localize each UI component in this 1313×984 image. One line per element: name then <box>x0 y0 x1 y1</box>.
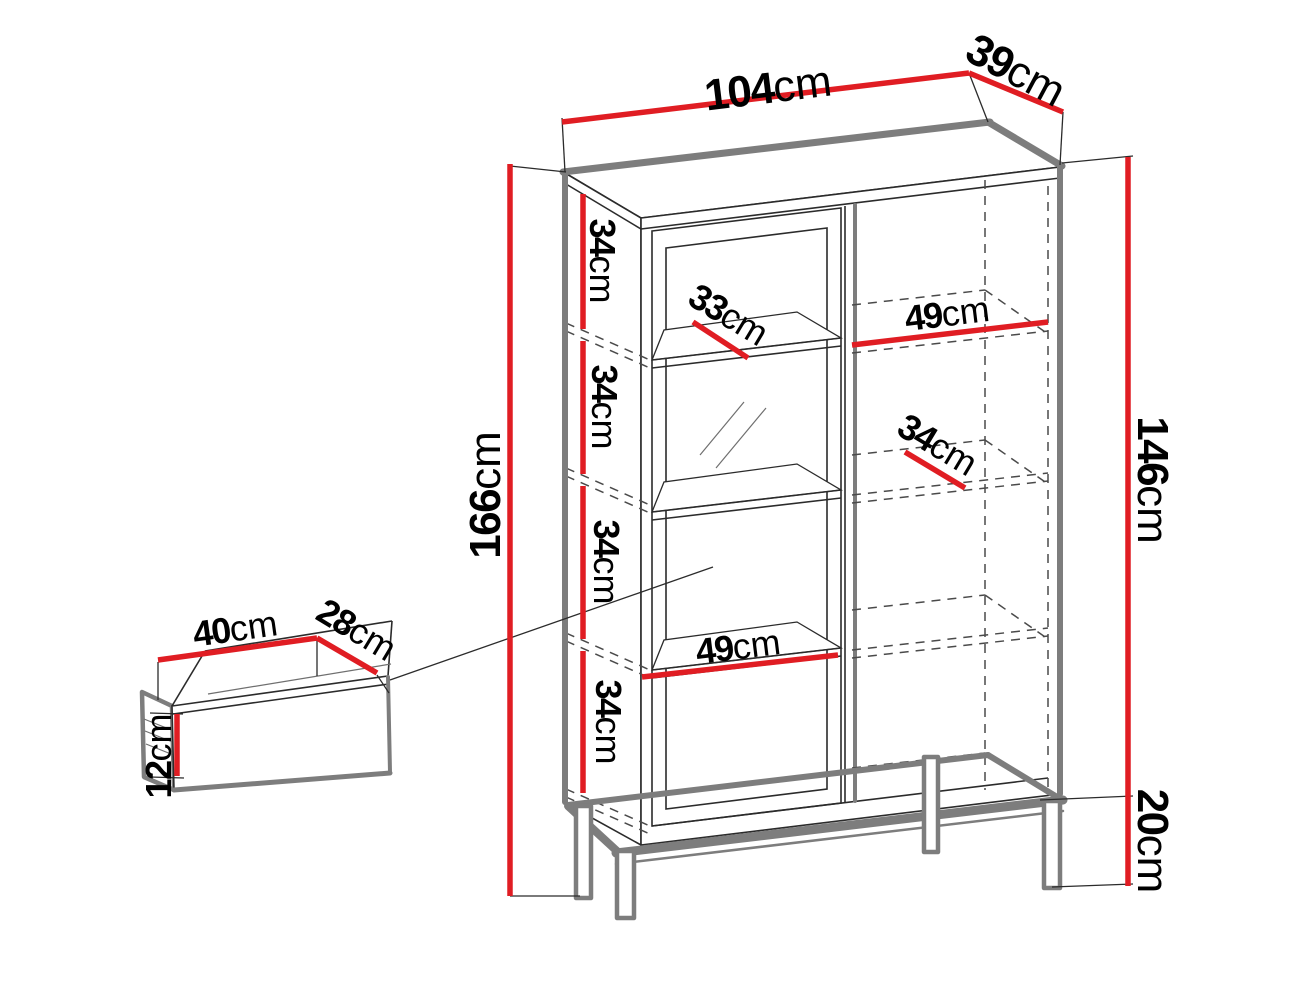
leg-front-right <box>1044 801 1060 888</box>
leg-back-left <box>576 806 591 898</box>
extension-line <box>1062 156 1133 163</box>
furniture-dimension-diagram: 104cm 39cm 166cm 146cm 20cm <box>0 0 1313 984</box>
dim-label-drawer-depth: 28cm <box>310 590 404 669</box>
dim-label-compartment-1: 34cm <box>583 218 624 303</box>
leg-back-right <box>924 757 938 852</box>
dim-drawer-width: 40cm <box>158 602 317 700</box>
dim-label-drawer-height: 12cm <box>138 713 179 798</box>
drawer-front-panel <box>172 676 390 790</box>
dim-drawer-height: 12cm <box>138 713 185 799</box>
leg-front-left <box>617 851 634 918</box>
dim-label-compartment-3: 34cm <box>587 519 628 604</box>
extension-line <box>1060 112 1063 165</box>
dim-label-leg-height: 20cm <box>1129 789 1178 894</box>
dim-label-compartment-4: 34cm <box>589 679 630 764</box>
dim-label-top-depth: 39cm <box>958 24 1073 116</box>
dim-leg-height: 20cm <box>1052 789 1178 894</box>
extension-line <box>562 118 565 172</box>
extension-line <box>1052 884 1133 887</box>
dim-label-compartment-2: 34cm <box>585 364 626 449</box>
diagram-canvas: 104cm 39cm 166cm 146cm 20cm <box>0 0 1313 984</box>
extension-line <box>510 166 566 172</box>
cabinet-body <box>563 122 1062 845</box>
dim-label-total-height: 166cm <box>461 431 510 559</box>
dim-label-body-height: 146cm <box>1129 416 1178 544</box>
dim-label-top-width: 104cm <box>702 56 835 120</box>
